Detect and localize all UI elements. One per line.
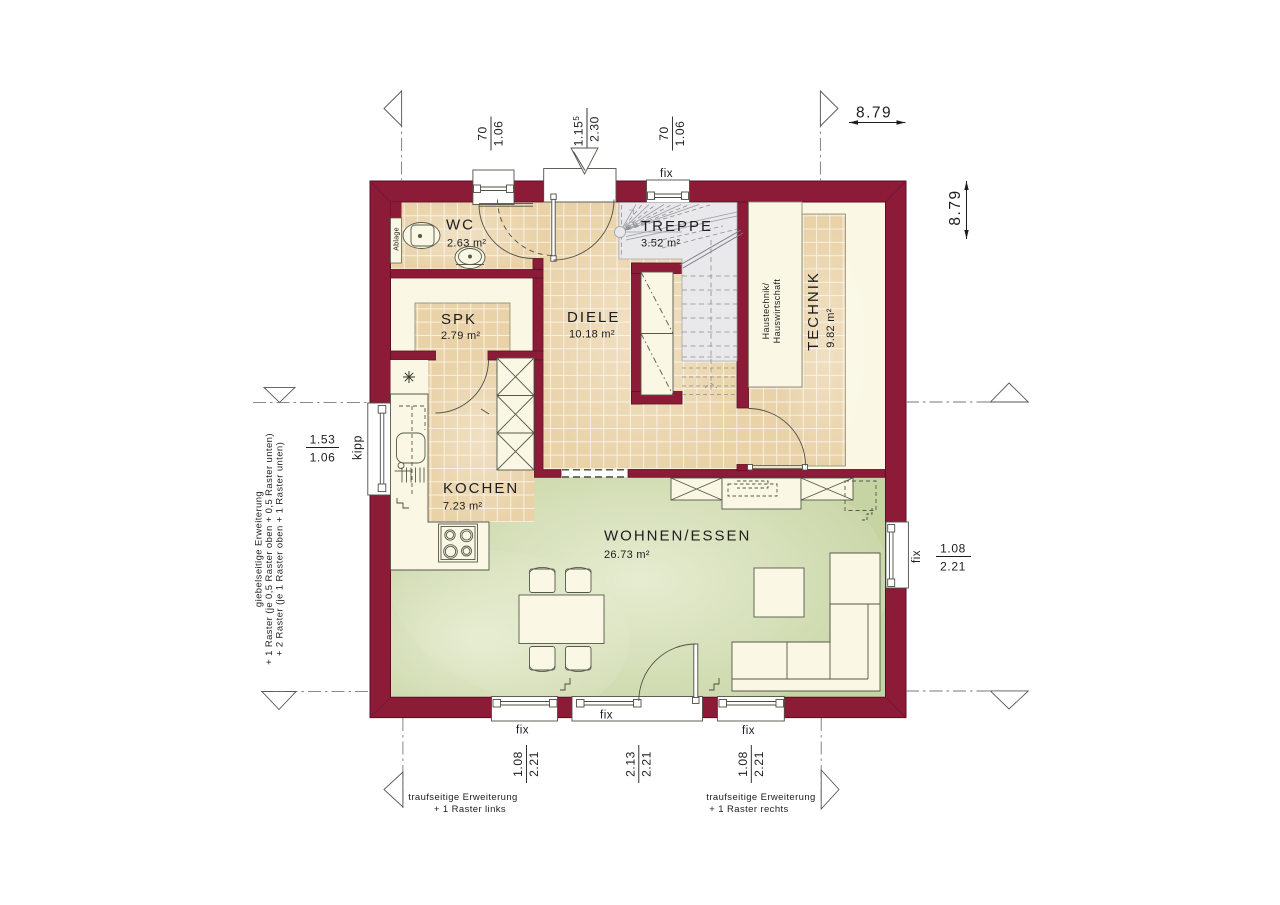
svg-text:70: 70	[657, 126, 671, 141]
svg-text:26.73 m²: 26.73 m²	[604, 549, 650, 561]
svg-text:9.82 m²: 9.82 m²	[825, 308, 837, 347]
svg-text:traufseitige Erweiterung: traufseitige Erweiterung	[706, 792, 815, 803]
svg-text:fix: fix	[660, 168, 673, 180]
svg-text:7.23 m²: 7.23 m²	[443, 501, 482, 513]
svg-text:Hauswirtschaft: Hauswirtschaft	[772, 279, 782, 344]
svg-text:+ 1 Raster rechts: + 1 Raster rechts	[709, 804, 788, 815]
svg-text:10.18 m²: 10.18 m²	[569, 329, 615, 341]
svg-text:SPK: SPK	[441, 311, 477, 328]
svg-text:1.08: 1.08	[736, 751, 750, 777]
svg-text:KOCHEN: KOCHEN	[443, 480, 519, 497]
svg-text:1.08: 1.08	[511, 751, 525, 777]
svg-text:WOHNEN/ESSEN: WOHNEN/ESSEN	[604, 528, 751, 545]
svg-text:2.79 m²: 2.79 m²	[441, 330, 480, 342]
svg-text:Haustechnik/: Haustechnik/	[761, 282, 771, 339]
svg-text:2.63 m²: 2.63 m²	[447, 238, 486, 250]
svg-text:1.06: 1.06	[673, 121, 687, 147]
svg-text:kipp: kipp	[351, 435, 365, 460]
svg-text:+ 1 Raster links: + 1 Raster links	[434, 804, 506, 815]
svg-text:8.79: 8.79	[947, 189, 964, 225]
svg-text:2.21: 2.21	[940, 560, 966, 574]
svg-text:70: 70	[476, 126, 490, 141]
svg-text:2.13: 2.13	[623, 751, 637, 777]
svg-text:TECHNIK: TECHNIK	[805, 271, 822, 351]
svg-text:giebelseitige Erweiterung: giebelseitige Erweiterung	[254, 491, 265, 607]
svg-text:Ablage: Ablage	[394, 227, 401, 251]
svg-text:1.06: 1.06	[310, 451, 336, 465]
svg-text:TREPPE: TREPPE	[641, 218, 713, 235]
svg-text:2.21: 2.21	[752, 751, 766, 777]
svg-text:8.79: 8.79	[856, 105, 892, 122]
svg-text:traufseitige Erweiterung: traufseitige Erweiterung	[408, 792, 517, 803]
svg-text:1.06: 1.06	[492, 121, 506, 147]
svg-text:1.155: 1.155	[572, 116, 586, 147]
svg-text:2.30: 2.30	[588, 116, 602, 142]
svg-text:+ 2 Raster (je 1 Raster oben +: + 2 Raster (je 1 Raster oben + 1 Raster …	[275, 442, 286, 656]
svg-text:WC: WC	[446, 217, 475, 234]
svg-text:2.21: 2.21	[527, 751, 541, 777]
svg-text:1.53: 1.53	[310, 433, 336, 447]
svg-text:fix: fix	[600, 710, 613, 722]
svg-text:3.52 m²: 3.52 m²	[641, 238, 680, 250]
svg-text:fix: fix	[911, 550, 923, 563]
svg-text:2.21: 2.21	[639, 751, 653, 777]
svg-text:DIELE: DIELE	[567, 309, 620, 326]
svg-text:+ 1 Raster (je 0,5 Raster oben: + 1 Raster (je 0,5 Raster oben + 0,5 Ras…	[264, 433, 275, 665]
svg-text:fix: fix	[516, 725, 529, 737]
svg-text:1.08: 1.08	[940, 542, 966, 556]
svg-text:fix: fix	[742, 725, 755, 737]
